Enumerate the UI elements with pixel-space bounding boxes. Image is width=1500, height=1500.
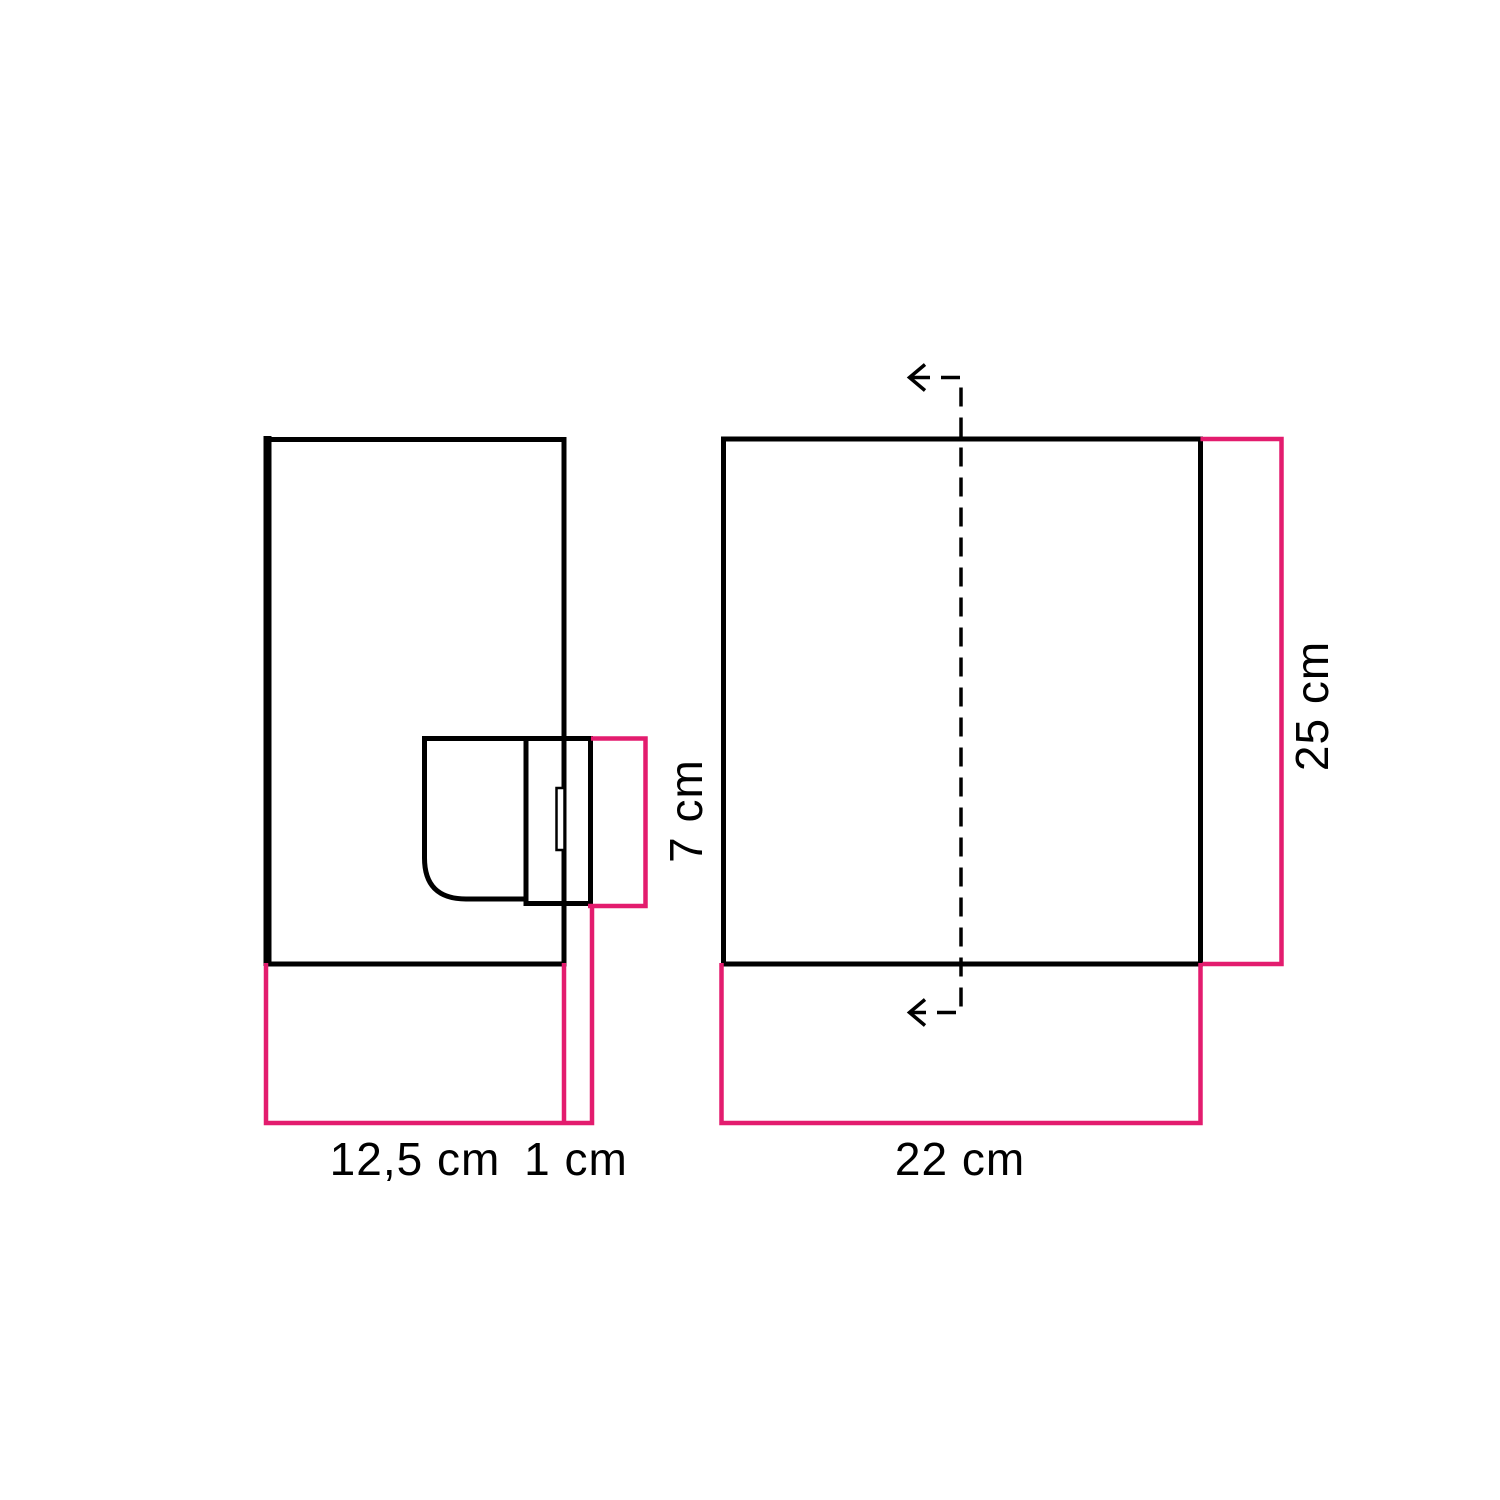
side-depth-label: 12,5 cm [330,1136,501,1182]
lampshade-dimension-diagram: 12,5 cm 1 cm 7 cm 22 cm 25 cm [0,0,1500,1500]
side-view-shade-rect [268,440,565,965]
front-width-label: 22 cm [895,1136,1025,1182]
side-depth-dimension-line [266,906,592,1123]
side-bracket-height-label: 7 cm [663,759,709,863]
front-height-label: 25 cm [1289,641,1335,771]
side-view-socket-cup [425,739,527,900]
side-wall-gap-label: 1 cm [524,1136,628,1182]
center-axis-line [910,365,962,1026]
side-view-keyhole-slot [557,788,565,850]
front-height-dimension-line [1201,439,1282,964]
center-axis-dashed-path [911,378,961,1013]
front-view-dimension-lines [722,439,1282,1123]
side-bracket-height-dimension-line [588,739,646,907]
side-view-outline [268,436,591,966]
diagram-drawing [0,0,1500,1500]
front-width-dimension-line [722,963,1201,1123]
